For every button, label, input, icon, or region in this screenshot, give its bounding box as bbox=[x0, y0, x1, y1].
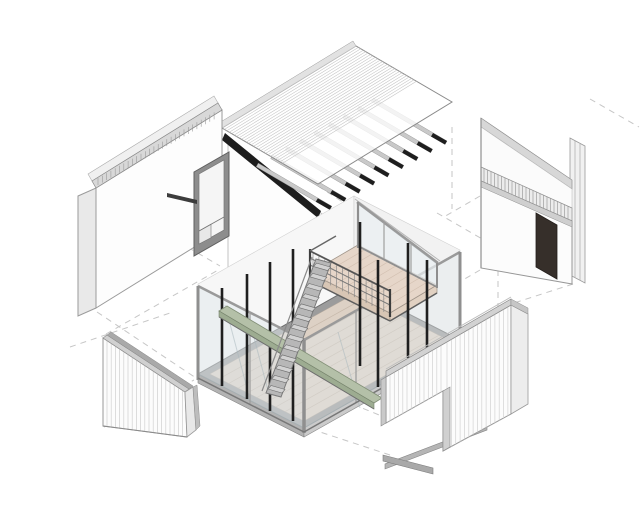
guide-top-right bbox=[590, 99, 639, 127]
door-opening-jamb bbox=[443, 387, 450, 451]
rafter-tail-3 bbox=[388, 157, 404, 169]
guide-rightwall-top bbox=[442, 196, 480, 218]
entry-door bbox=[536, 213, 557, 279]
bottom-left-siding-panel bbox=[103, 332, 200, 437]
rafter-tail-1 bbox=[417, 141, 433, 153]
wall-edge bbox=[78, 188, 96, 316]
rafter-tail-4 bbox=[373, 166, 389, 178]
panel-right-side bbox=[511, 305, 528, 414]
rafter-tail-8 bbox=[316, 198, 332, 210]
drawing-canvas bbox=[0, 0, 640, 512]
rafter-tail-5 bbox=[359, 174, 375, 186]
rafter-tail-6 bbox=[345, 182, 361, 194]
rafter-tail-0 bbox=[431, 133, 447, 145]
right-wall-panel bbox=[481, 118, 585, 284]
guide-rightpanel-core2 bbox=[320, 432, 390, 455]
rafter-tail-2 bbox=[402, 149, 418, 161]
exploded-axonometric-diagram bbox=[0, 0, 640, 512]
panel-left-bar bbox=[381, 377, 386, 426]
guide-rightwall-panel bbox=[514, 284, 573, 303]
rafter-tail-7 bbox=[330, 190, 346, 202]
